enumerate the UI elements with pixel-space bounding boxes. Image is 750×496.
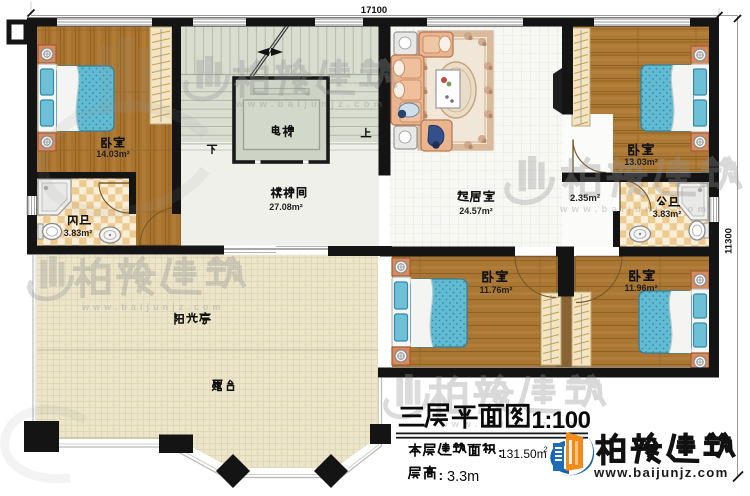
svg-text:17100: 17100 <box>361 5 387 16</box>
svg-text:14.03m²: 14.03m² <box>96 149 130 159</box>
svg-text:2.35m²: 2.35m² <box>570 193 600 204</box>
svg-text:3.3m: 3.3m <box>447 469 479 485</box>
svg-text:www.baijunjz.com: www.baijunjz.com <box>593 465 729 480</box>
svg-text:11300: 11300 <box>724 228 735 254</box>
svg-text:131.50m: 131.50m <box>500 447 547 461</box>
svg-text:www.baijunjz.com: www.baijunjz.com <box>235 99 386 110</box>
svg-text:27.08m²: 27.08m² <box>269 202 303 212</box>
svg-text:3.83m²: 3.83m² <box>64 228 93 238</box>
svg-text:1:100: 1:100 <box>532 407 591 434</box>
svg-text::: : <box>439 467 444 483</box>
svg-text:24.57m²: 24.57m² <box>459 206 493 216</box>
svg-text:3.83m²: 3.83m² <box>653 209 682 219</box>
svg-text:11.76m²: 11.76m² <box>479 285 512 295</box>
svg-text:11.96m²: 11.96m² <box>624 283 657 293</box>
svg-text:13.03m²: 13.03m² <box>624 157 658 167</box>
svg-text:2: 2 <box>544 445 548 454</box>
svg-text:www.baijunjz.com: www.baijunjz.com <box>559 204 710 215</box>
svg-text:www.baijunjz.com: www.baijunjz.com <box>81 302 224 312</box>
